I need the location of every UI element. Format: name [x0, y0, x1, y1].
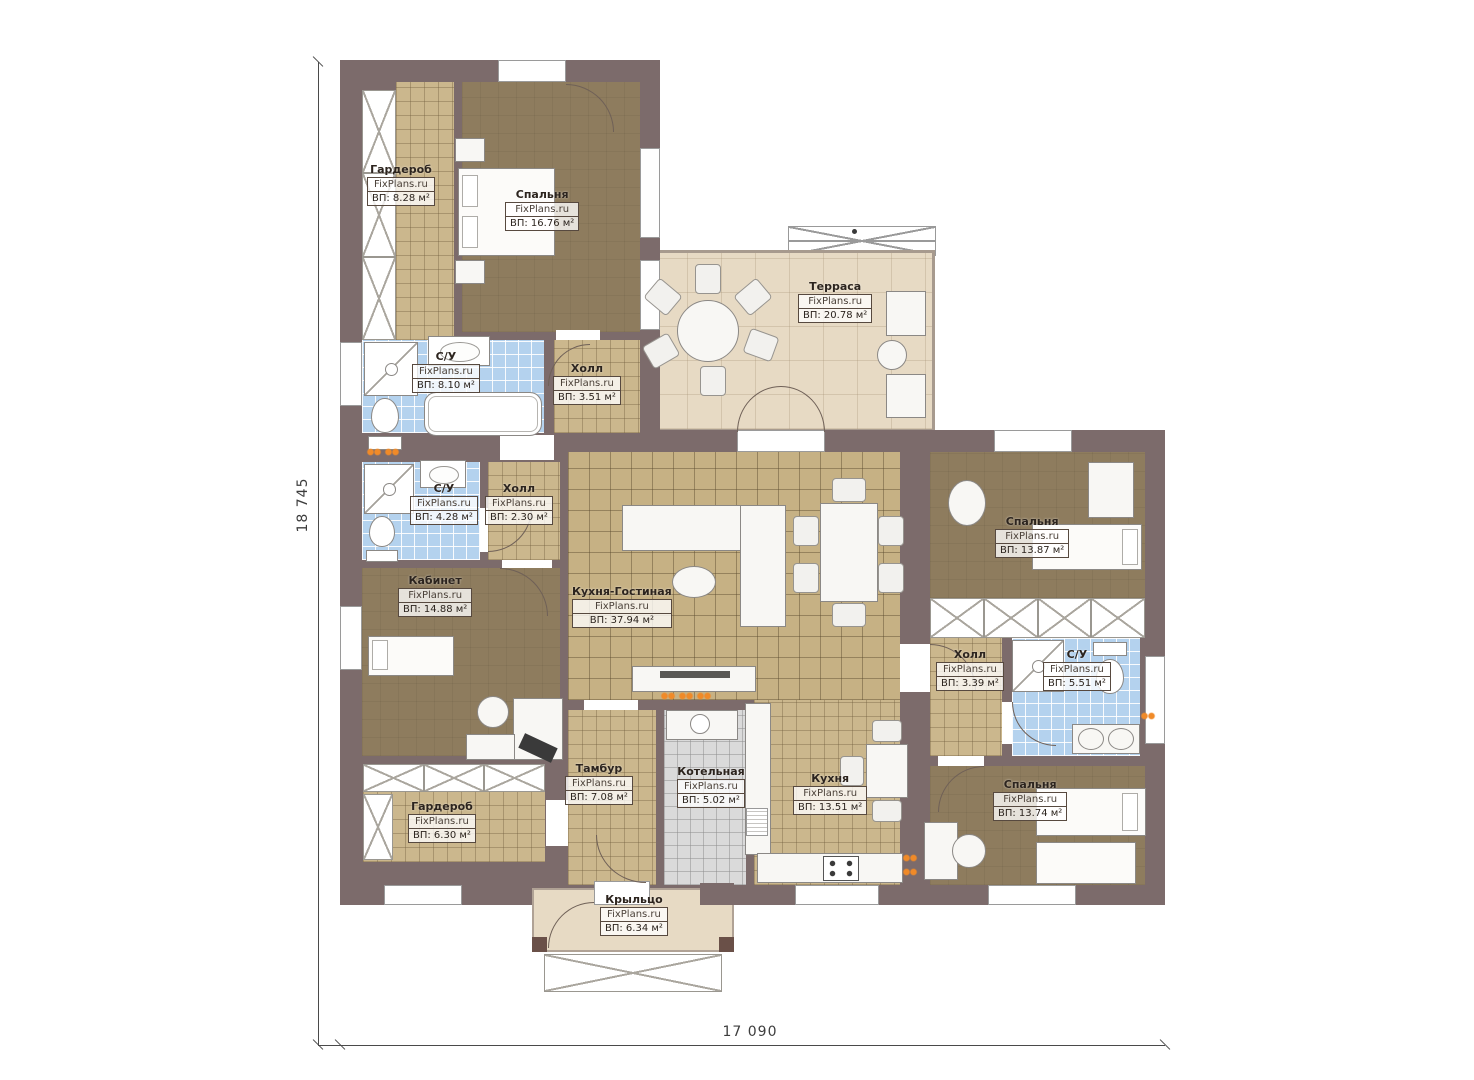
room-label-spalnya-3: Спальня FixPlans.ru ВП: 13.74 м²: [993, 778, 1067, 821]
closet-unit-icon: [484, 764, 545, 792]
watermark: FixPlans.ru: [566, 777, 632, 791]
desk-chair: [477, 696, 509, 728]
east-closet-strip: [930, 598, 1145, 638]
closet-unit-icon: [1091, 598, 1145, 638]
pillow: [1122, 793, 1138, 831]
radiator-indicator: [902, 854, 918, 862]
door-opening: [500, 435, 554, 460]
shower-icon: [364, 342, 418, 396]
watermark: FixPlans.ru: [368, 178, 434, 192]
room-name: Кухня-Гостиная: [572, 585, 672, 598]
watermark: FixPlans.ru: [399, 589, 471, 603]
room-label-kuhnya-gostinaya: Кухня-Гостиная FixPlans.ru ВП: 37.94 м²: [572, 585, 672, 628]
radiator-indicator: [902, 868, 918, 876]
dining-chair: [793, 563, 819, 593]
room-name: Спальня: [993, 778, 1067, 791]
room-area: ВП: 8.28 м²: [368, 192, 434, 205]
dining-chair: [793, 516, 819, 546]
terrace-round-table: [677, 300, 739, 362]
room-area: ВП: 3.51 м²: [554, 391, 620, 404]
room-label-su-3: С/У FixPlans.ru ВП: 5.51 м²: [1043, 648, 1111, 691]
room-label-garderob-2: Гардероб FixPlans.ru ВП: 6.30 м²: [408, 800, 476, 843]
toilet-icon: [366, 516, 398, 562]
bathtub-icon: [424, 392, 542, 436]
dining-table: [820, 503, 878, 602]
porch-pillar: [719, 937, 734, 952]
window: [640, 148, 660, 238]
wardrobe-closet-strip: [362, 90, 396, 340]
porch-pillar: [532, 937, 547, 952]
dining-chair: [878, 563, 904, 593]
room-label-holl-2: Холл FixPlans.ru ВП: 2.30 м²: [485, 482, 553, 525]
room-area: ВП: 13.51 м²: [794, 801, 866, 814]
room-label-kotelnaya: Котельная FixPlans.ru ВП: 5.02 м²: [677, 765, 745, 808]
room-label-garderob-1: Гардероб FixPlans.ru ВП: 8.28 м²: [367, 163, 435, 206]
door-opening: [556, 330, 600, 340]
single-bed: [1036, 842, 1136, 884]
watermark: FixPlans.ru: [1044, 663, 1110, 677]
terrace-chair: [695, 264, 721, 294]
boiler-icon: [690, 714, 710, 734]
window: [384, 885, 462, 905]
radiator-indicator: [1140, 712, 1156, 720]
nightstand: [455, 260, 485, 284]
desk-chair: [952, 834, 986, 868]
dimension-width-label: 17 090: [700, 1024, 800, 1040]
room-label-kabinet: Кабинет FixPlans.ru ВП: 14.88 м²: [398, 574, 472, 617]
radiator-indicator: [384, 448, 400, 456]
terrace-chair: [700, 366, 726, 396]
window: [498, 60, 566, 82]
sofa-corner: [740, 505, 786, 627]
window: [1145, 656, 1165, 744]
room-area: ВП: 2.30 м²: [486, 511, 552, 524]
window: [340, 606, 362, 670]
room-name: Холл: [936, 648, 1004, 661]
room-area: ВП: 37.94 м²: [573, 614, 671, 627]
closet-unit-icon: [1038, 598, 1092, 638]
window: [795, 885, 879, 905]
terrace-armchair: [886, 374, 926, 418]
garderob2-closet-strip: [363, 764, 545, 792]
room-name: Спальня: [995, 515, 1069, 528]
room-label-terrasa: Терраса FixPlans.ru ВП: 20.78 м²: [798, 280, 872, 323]
dining-chair: [832, 603, 866, 627]
room-name: С/У: [410, 482, 478, 495]
coffee-table: [672, 566, 716, 598]
room-name: Гардероб: [408, 800, 476, 813]
watermark: FixPlans.ru: [411, 497, 477, 511]
room-area: ВП: 13.87 м²: [996, 544, 1068, 557]
porch-wall-segment: [700, 883, 734, 905]
dining-chair: [832, 478, 866, 502]
roof-axis-dot: [852, 229, 857, 234]
room-name: Гардероб: [367, 163, 435, 176]
room-area: ВП: 14.88 м²: [399, 603, 471, 616]
toilet-icon: [368, 398, 402, 450]
watermark: FixPlans.ru: [799, 295, 871, 309]
window: [988, 885, 1076, 905]
closet-unit-icon: [362, 90, 396, 173]
armchair: [948, 480, 986, 526]
door-opening: [502, 560, 552, 568]
door-opening: [938, 756, 984, 766]
room-label-tambur: Тамбур FixPlans.ru ВП: 7.08 м²: [565, 762, 633, 805]
room-name: Котельная: [677, 765, 745, 778]
room-name: Холл: [485, 482, 553, 495]
watermark: FixPlans.ru: [409, 815, 475, 829]
watermark: FixPlans.ru: [996, 530, 1068, 544]
kitchen-table: [866, 744, 908, 798]
room-name: Крыльцо: [600, 893, 668, 906]
closet-unit-icon: [930, 598, 984, 638]
terrace-french-door-opening: [737, 430, 825, 452]
room-name: Кухня: [793, 772, 867, 785]
room-label-spalnya-2: Спальня FixPlans.ru ВП: 13.87 м²: [995, 515, 1069, 558]
room-name: Кабинет: [398, 574, 472, 587]
watermark: FixPlans.ru: [794, 787, 866, 801]
washing-machine-icon: [746, 808, 768, 836]
watermark: FixPlans.ru: [413, 365, 479, 379]
terrace-side-table: [877, 340, 907, 370]
dimension-line-horizontal: [318, 1045, 1165, 1046]
door-opening: [546, 800, 568, 846]
room-area: ВП: 20.78 м²: [799, 309, 871, 322]
garderob2-closet-side: [363, 794, 393, 860]
window: [994, 430, 1072, 452]
room-name: Терраса: [798, 280, 872, 293]
room-label-holl-3: Холл FixPlans.ru ВП: 3.39 м²: [936, 648, 1004, 691]
desk-return: [466, 734, 515, 760]
watermark: FixPlans.ru: [573, 600, 671, 614]
wardrobe-cabinet: [1088, 462, 1134, 518]
room-label-su-1: С/У FixPlans.ru ВП: 8.10 м²: [412, 350, 480, 393]
room-label-su-2: С/У FixPlans.ru ВП: 4.28 м²: [410, 482, 478, 525]
nightstand: [455, 138, 485, 162]
room-name: С/У: [1043, 648, 1111, 661]
burner-indicator: [660, 692, 676, 700]
room-area: ВП: 7.08 м²: [566, 791, 632, 804]
floor-plan-canvas: 18 745 17 090: [0, 0, 1474, 1080]
kitchen-chair: [872, 720, 902, 742]
closet-unit-icon: [363, 764, 424, 792]
radiator-indicator: [366, 448, 382, 456]
closet-unit-icon: [984, 598, 1038, 638]
stove-icon: [823, 856, 859, 881]
room-name: С/У: [412, 350, 480, 363]
watermark: FixPlans.ru: [506, 203, 578, 217]
kitchen-chair: [872, 800, 902, 822]
toilet-bowl: [371, 398, 398, 433]
room-area: ВП: 16.76 м²: [506, 217, 578, 230]
room-area: ВП: 5.51 м²: [1044, 677, 1110, 690]
room-area: ВП: 6.34 м²: [601, 922, 667, 935]
watermark: FixPlans.ru: [678, 780, 744, 794]
room-area: ВП: 3.39 м²: [937, 677, 1003, 690]
pillow: [462, 216, 478, 248]
sink-basin: [1108, 728, 1134, 750]
room-area: ВП: 4.28 м²: [411, 511, 477, 524]
dimension-height-label: 18 745: [295, 460, 311, 550]
door-opening: [1002, 702, 1012, 744]
sink-basin: [1078, 728, 1104, 750]
pillow: [372, 640, 388, 670]
dimension-line-vertical: [318, 62, 319, 1045]
watermark: FixPlans.ru: [994, 793, 1066, 807]
floor-garderob-1: [396, 82, 454, 340]
watermark: FixPlans.ru: [554, 377, 620, 391]
pillow: [462, 175, 478, 207]
door-opening: [900, 644, 930, 692]
window: [340, 342, 362, 406]
room-name: Холл: [553, 362, 621, 375]
terrace-armchair: [886, 291, 926, 336]
door-opening: [584, 700, 638, 710]
porch-steps-marker: [544, 954, 722, 992]
watermark: FixPlans.ru: [937, 663, 1003, 677]
room-label-kuhnya: Кухня FixPlans.ru ВП: 13.51 м²: [793, 772, 867, 815]
room-area: ВП: 8.10 м²: [413, 379, 479, 392]
steps-hatch: [544, 954, 722, 992]
tv-icon: [660, 671, 730, 678]
tv-cabinet: [632, 666, 756, 692]
closet-unit-icon: [362, 257, 396, 340]
pillow: [1122, 529, 1138, 565]
room-label-krylco: Крыльцо FixPlans.ru ВП: 6.34 м²: [600, 893, 668, 936]
burner-indicator: [678, 692, 694, 700]
watermark: FixPlans.ru: [486, 497, 552, 511]
closet-unit-icon: [363, 794, 393, 860]
watermark: FixPlans.ru: [601, 908, 667, 922]
toilet-bowl: [369, 516, 395, 547]
dining-chair: [878, 516, 904, 546]
room-label-spalnya-1: Спальня FixPlans.ru ВП: 16.76 м²: [505, 188, 579, 231]
room-name: Спальня: [505, 188, 579, 201]
toilet-tank: [366, 550, 398, 562]
room-area: ВП: 13.74 м²: [994, 807, 1066, 820]
room-label-holl-1: Холл FixPlans.ru ВП: 3.51 м²: [553, 362, 621, 405]
shower-icon: [364, 464, 414, 514]
room-area: ВП: 6.30 м²: [409, 829, 475, 842]
burner-indicator: [696, 692, 712, 700]
room-name: Тамбур: [565, 762, 633, 775]
room-area: ВП: 5.02 м²: [678, 794, 744, 807]
closet-unit-icon: [424, 764, 485, 792]
